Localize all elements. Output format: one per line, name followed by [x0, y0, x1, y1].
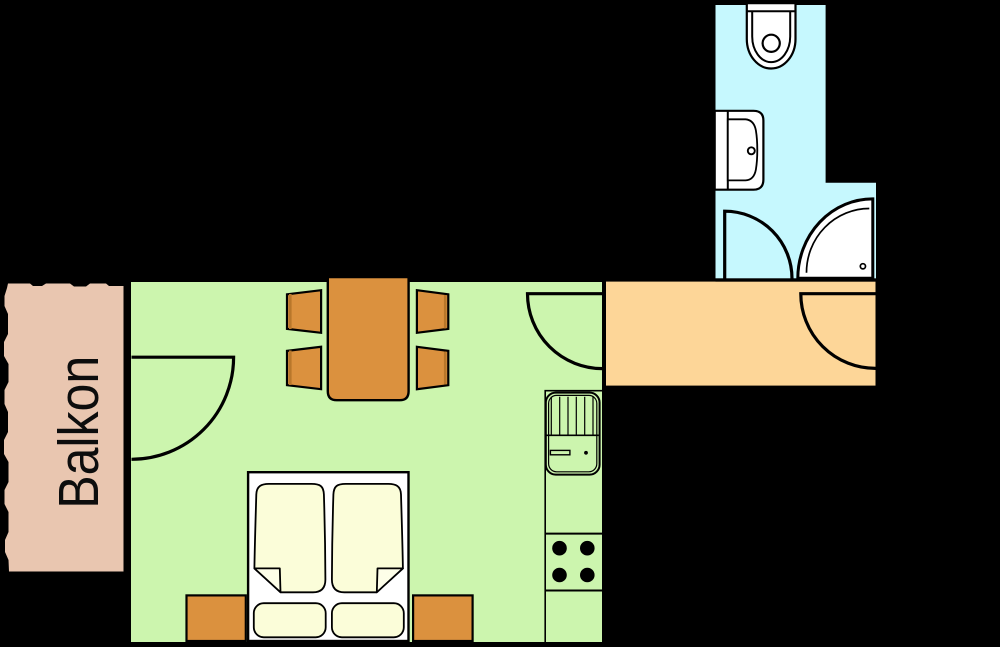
svg-text:Balkon: Balkon	[47, 356, 111, 509]
